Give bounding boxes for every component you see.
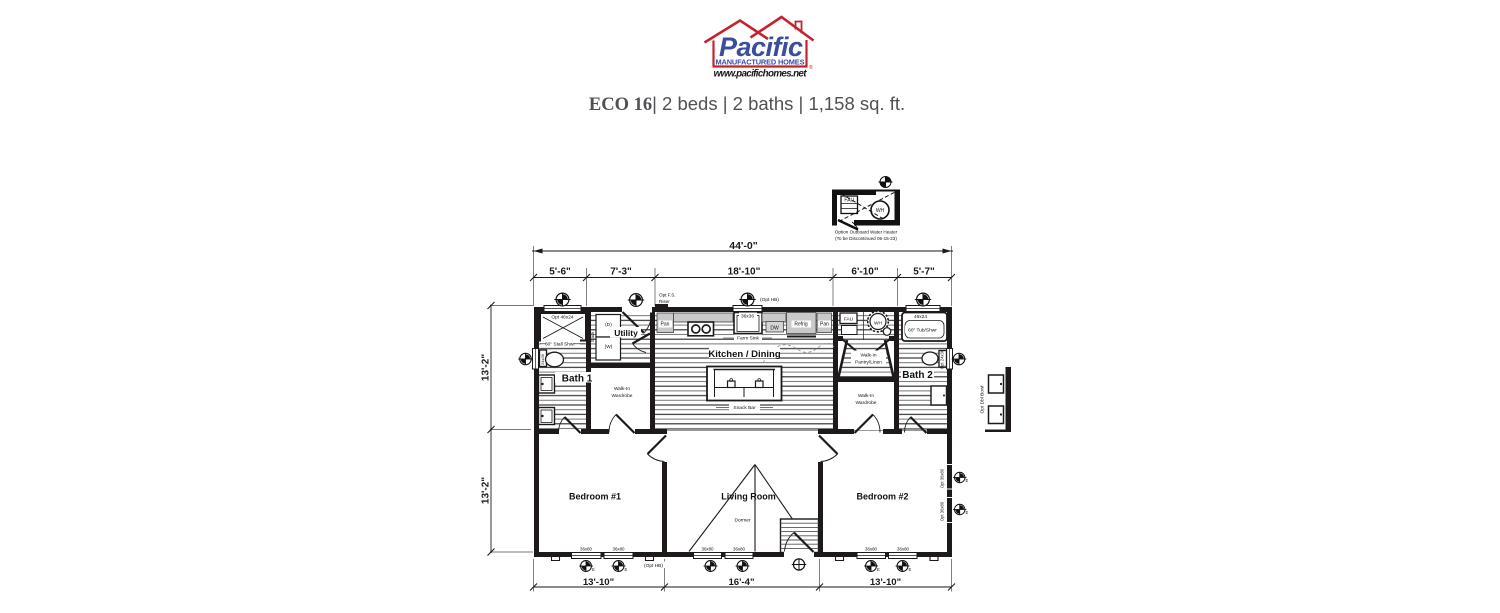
svg-text:MANUFACTURED HOMES: MANUFACTURED HOMES	[716, 58, 805, 67]
svg-text:6'-10": 6'-10"	[851, 267, 878, 278]
svg-text:Refrig: Refrig	[794, 322, 808, 328]
svg-text:Opt 46x24: Opt 46x24	[551, 315, 573, 321]
svg-text:13'-10": 13'-10"	[870, 577, 901, 588]
svg-text:Pan: Pan	[661, 322, 670, 328]
svg-text:Wardrobe: Wardrobe	[612, 393, 633, 399]
svg-text:Pantry/Linen: Pantry/Linen	[855, 360, 882, 366]
svg-text:Bedroom #1: Bedroom #1	[569, 492, 621, 502]
svg-text:Bath 1: Bath 1	[562, 374, 593, 385]
svg-text:5'-7": 5'-7"	[913, 267, 935, 278]
svg-text:DW: DW	[770, 326, 779, 332]
svg-text:36x80: 36x80	[580, 547, 593, 552]
svg-text:Dormer: Dormer	[735, 518, 751, 524]
svg-text:Farm Sink: Farm Sink	[737, 336, 759, 342]
svg-text:WH: WH	[874, 321, 883, 327]
svg-text:Walk-In: Walk-In	[858, 393, 874, 399]
svg-text:Living Room: Living Room	[721, 492, 776, 502]
svg-text:Bath 2: Bath 2	[902, 370, 933, 381]
svg-text:E: E	[592, 567, 595, 572]
svg-text:Bedroom #2: Bedroom #2	[856, 492, 908, 502]
svg-text:60" Stall Shwr: 60" Stall Shwr	[545, 342, 575, 348]
svg-text:44'-0": 44'-0"	[729, 240, 758, 252]
svg-text:Opt 24x36: Opt 24x36	[940, 349, 945, 369]
svg-text:7'-3": 7'-3"	[610, 267, 632, 278]
svg-text:Riser: Riser	[659, 299, 670, 304]
svg-text:36x80: 36x80	[897, 547, 910, 552]
svg-text:Pan: Pan	[820, 322, 829, 328]
svg-text:Walk-In: Walk-In	[614, 386, 630, 392]
svg-text:Snack Bar: Snack Bar	[733, 405, 756, 411]
svg-text:Wardrobe: Wardrobe	[856, 400, 877, 406]
svg-text:Kitchen / Dining: Kitchen / Dining	[708, 349, 781, 360]
svg-text:46x24: 46x24	[914, 314, 927, 320]
svg-text:36x80: 36x80	[702, 547, 715, 552]
svg-text:Opt 36x80: Opt 36x80	[940, 468, 945, 488]
svg-text:www.pacifichomes.net: www.pacifichomes.net	[714, 69, 808, 80]
svg-text:18'-10": 18'-10"	[728, 267, 761, 278]
svg-text:FAU: FAU	[844, 317, 854, 323]
svg-text:(Opt HB): (Opt HB)	[760, 297, 779, 303]
svg-text:Opt 36x80: Opt 36x80	[940, 501, 945, 521]
svg-text:WH: WH	[876, 208, 885, 214]
svg-text:36x36: 36x36	[741, 314, 754, 320]
svg-text:5'-6": 5'-6"	[549, 267, 571, 278]
svg-text:13'-2": 13'-2"	[481, 354, 492, 381]
svg-text:60" Tub/Shwr: 60" Tub/Shwr	[908, 328, 937, 334]
svg-text:Utility: Utility	[614, 328, 638, 338]
svg-text:36x80: 36x80	[865, 547, 878, 552]
svg-text:13'-2": 13'-2"	[481, 477, 492, 504]
svg-text:36x80: 36x80	[613, 547, 626, 552]
svg-text:Walk-In: Walk-In	[860, 353, 876, 359]
svg-text:E: E	[877, 567, 880, 572]
svg-text:36x80: 36x80	[733, 547, 746, 552]
svg-text:(W): (W)	[605, 344, 613, 350]
svg-text:E: E	[625, 567, 628, 572]
svg-text:(D): (D)	[605, 322, 612, 328]
svg-text:(Opt HB): (Opt HB)	[644, 563, 663, 569]
svg-text:E: E	[909, 567, 912, 572]
svg-text:(To be Discontinued 05-15-23): (To be Discontinued 05-15-23)	[835, 236, 897, 241]
svg-text:ECO 16| 2 beds | 2 baths | 1,1: ECO 16| 2 beds | 2 baths | 1,158 sq. ft.	[589, 93, 905, 115]
svg-text:Stack: Stack	[590, 331, 595, 342]
svg-text:®: ®	[809, 64, 813, 71]
svg-text:E: E	[966, 510, 969, 515]
svg-text:24x36: 24x36	[540, 353, 545, 365]
svg-text:Opt F.S.: Opt F.S.	[659, 293, 676, 298]
svg-text:Opt Dbl Bowl: Opt Dbl Bowl	[980, 386, 986, 414]
svg-text:13'-10": 13'-10"	[583, 577, 614, 588]
svg-text:E: E	[966, 478, 969, 483]
svg-text:Option Outboard Water Heater: Option Outboard Water Heater	[835, 230, 898, 235]
svg-text:16'-4": 16'-4"	[728, 577, 754, 588]
